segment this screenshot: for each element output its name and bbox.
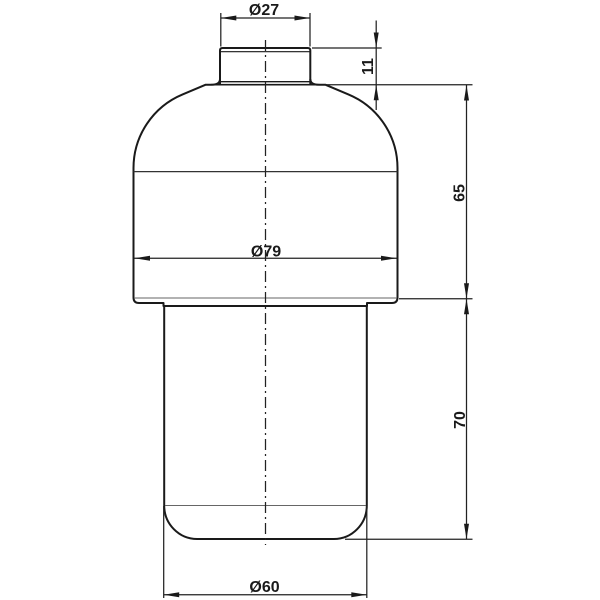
svg-text:70: 70	[452, 411, 469, 429]
svg-text:Ø27: Ø27	[249, 2, 279, 19]
svg-text:11: 11	[360, 58, 377, 75]
svg-text:65: 65	[452, 184, 469, 202]
svg-text:Ø60: Ø60	[249, 579, 279, 596]
svg-text:Ø79: Ø79	[251, 244, 281, 261]
